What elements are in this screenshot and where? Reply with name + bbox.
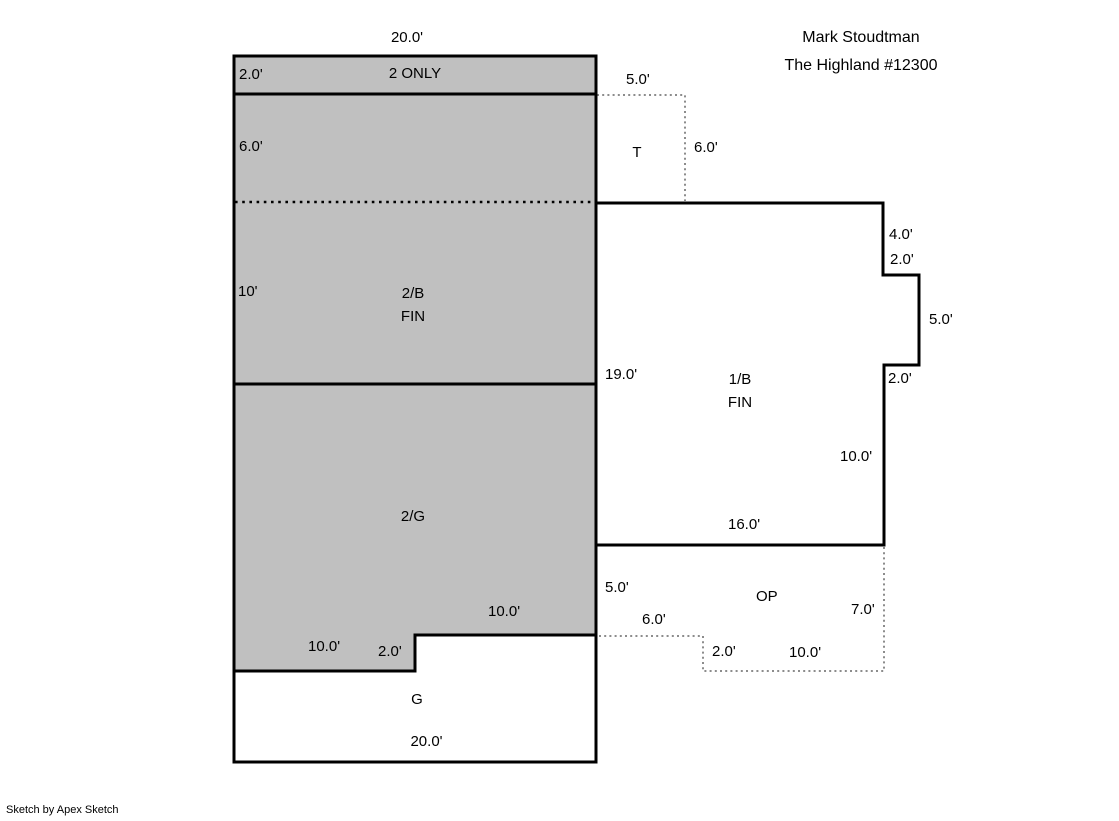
dim-g-step-height: 2.0' bbox=[378, 644, 402, 660]
dim-strip-height: 2.0' bbox=[239, 67, 263, 83]
room-second-basement: 2/B bbox=[388, 286, 438, 302]
owner-name: Mark Stoudtman bbox=[790, 29, 932, 46]
room-first-basement-sub: FIN bbox=[715, 395, 765, 411]
room-first-basement: 1/B bbox=[715, 372, 765, 388]
dim-b1-notch-top: 4.0' bbox=[889, 227, 913, 243]
dim-g2-bottom-right-width: 10.0' bbox=[488, 604, 520, 620]
dim-b1-notch-right: 5.0' bbox=[929, 312, 953, 328]
dim-op-left-height: 5.0' bbox=[605, 580, 629, 596]
room-second-basement-sub: FIN bbox=[388, 309, 438, 325]
open-porch-dotted-outline bbox=[598, 547, 884, 671]
room-terrace: T bbox=[625, 145, 649, 161]
dim-b1-right-height: 10.0' bbox=[840, 449, 872, 465]
apex-sketch-canvas: Mark Stoudtman The Highland #12300 20.0'… bbox=[0, 0, 1119, 821]
dim-op-right-height: 7.0' bbox=[851, 602, 875, 618]
apex-sketch-credit: Sketch by Apex Sketch bbox=[6, 804, 119, 816]
room-second-garage: 2/G bbox=[388, 509, 438, 525]
dim-b1-left-height: 19.0' bbox=[605, 367, 637, 383]
room-garage: G bbox=[403, 692, 431, 708]
dim-b1-notch-in: 2.0' bbox=[890, 252, 914, 268]
dim-b1-bottom-width: 16.0' bbox=[728, 517, 760, 533]
dim-b1-notch-out: 2.0' bbox=[888, 371, 912, 387]
floorplan-drawing bbox=[0, 0, 1119, 821]
dim-upper-height: 6.0' bbox=[239, 139, 263, 155]
dim-t-width: 5.0' bbox=[626, 72, 650, 88]
dim-b2-height: 10' bbox=[238, 284, 258, 300]
dim-op-step-height: 2.0' bbox=[712, 644, 736, 660]
dim-top-width: 20.0' bbox=[383, 30, 431, 46]
room-second-only: 2 ONLY bbox=[360, 66, 470, 82]
dim-t-height: 6.0' bbox=[694, 140, 718, 156]
plan-name: The Highland #12300 bbox=[775, 57, 947, 74]
room-open-porch: OP bbox=[756, 589, 778, 605]
dim-op-bottom-width: 10.0' bbox=[789, 645, 821, 661]
dim-g-step-top-width: 10.0' bbox=[308, 639, 340, 655]
dim-g-bottom-width: 20.0' bbox=[404, 734, 449, 750]
gray-shaded-area bbox=[234, 56, 596, 671]
dim-op-step-width: 6.0' bbox=[642, 612, 666, 628]
